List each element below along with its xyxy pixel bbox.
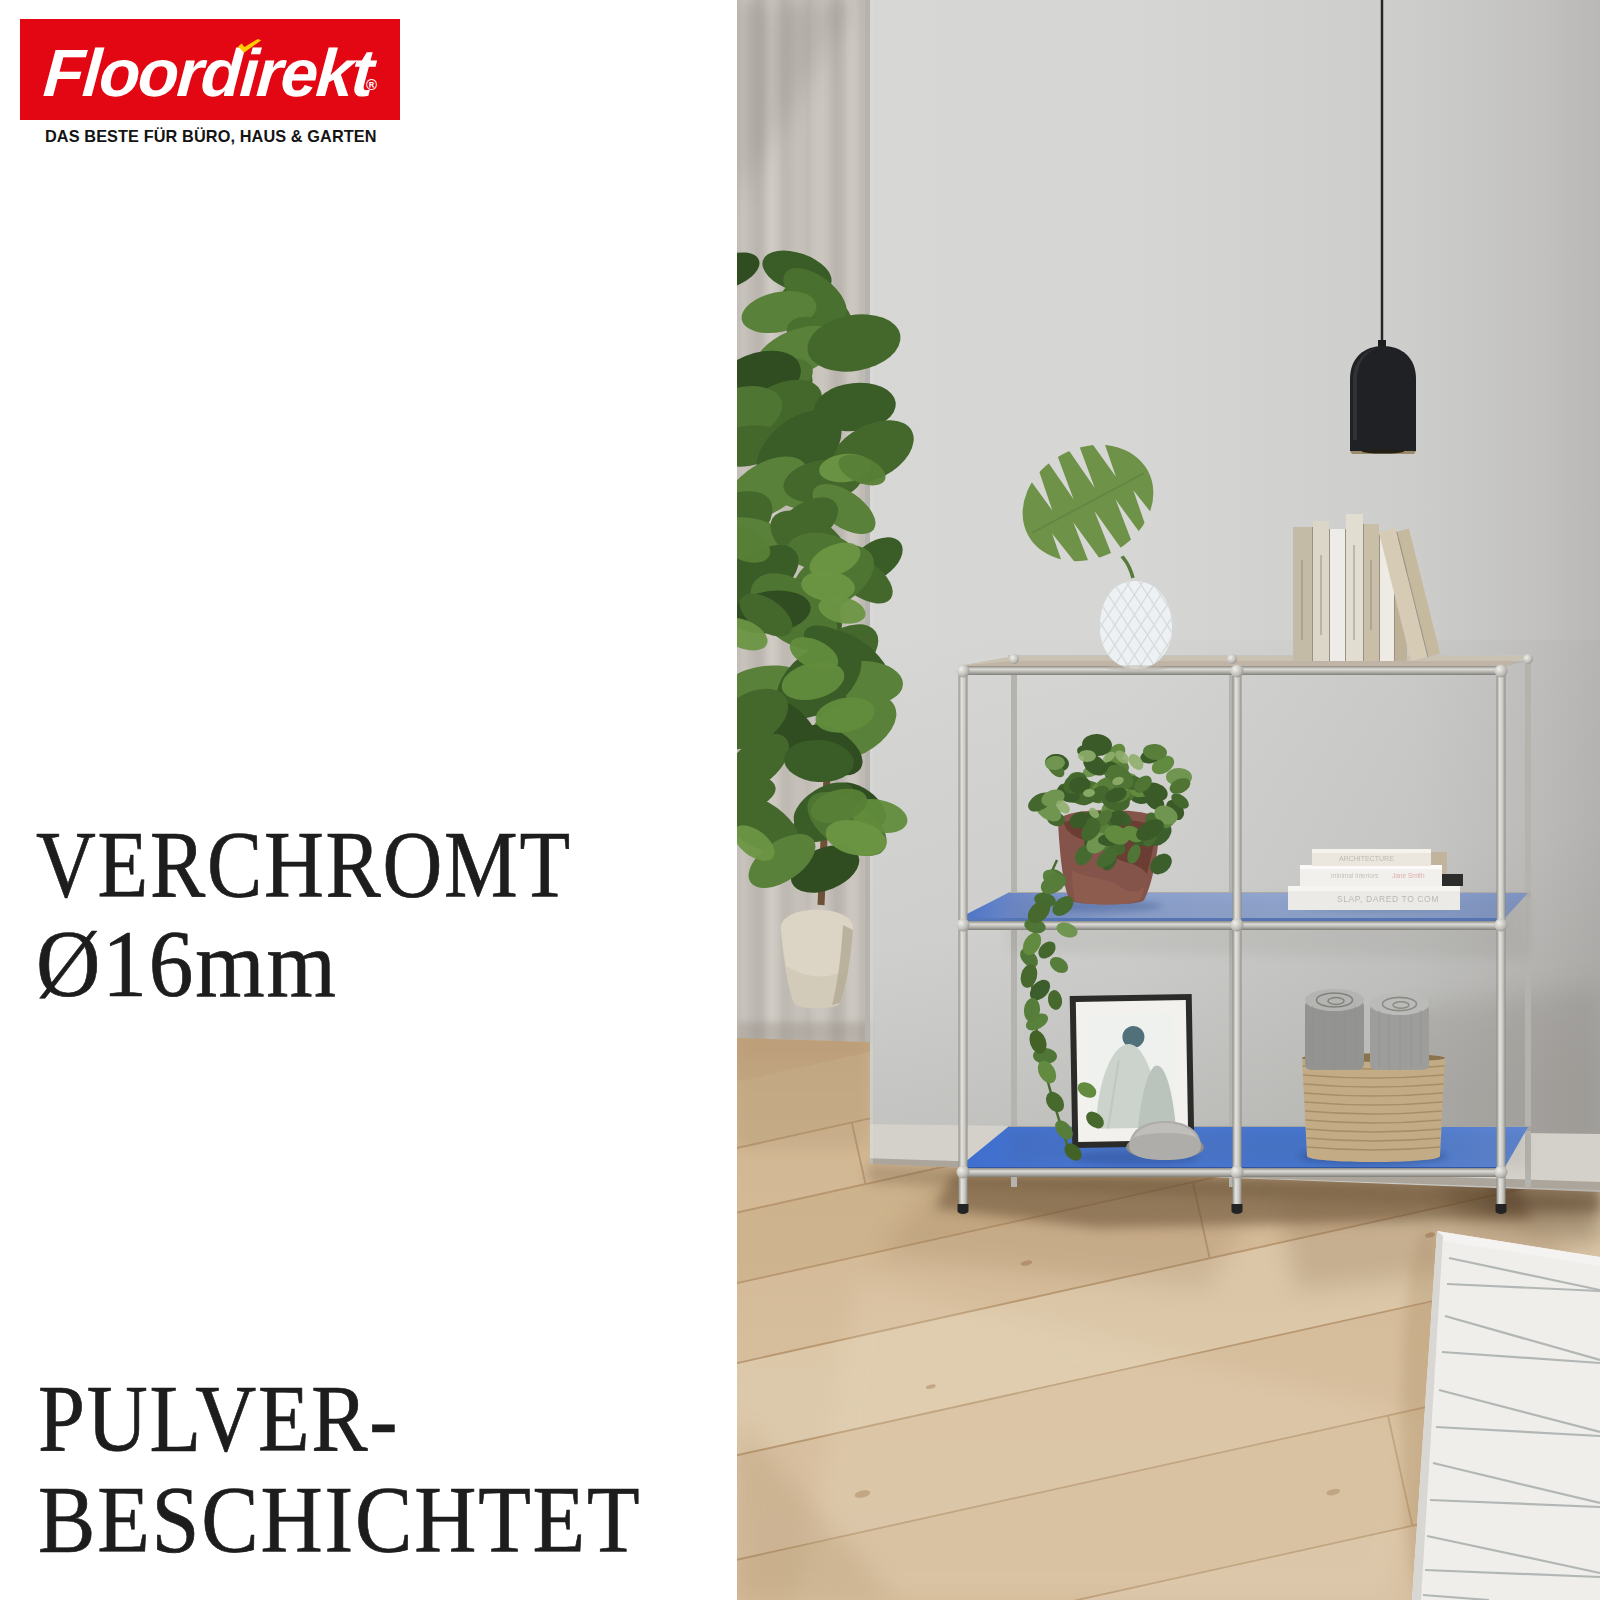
svg-text:Jane Smith: Jane Smith bbox=[1392, 872, 1425, 879]
svg-text:minimal interiors: minimal interiors bbox=[1331, 872, 1379, 879]
svg-text:ARCHITECTURE: ARCHITECTURE bbox=[1339, 855, 1394, 862]
svg-text:SLAP, DARED TO COM: SLAP, DARED TO COM bbox=[1337, 894, 1439, 904]
